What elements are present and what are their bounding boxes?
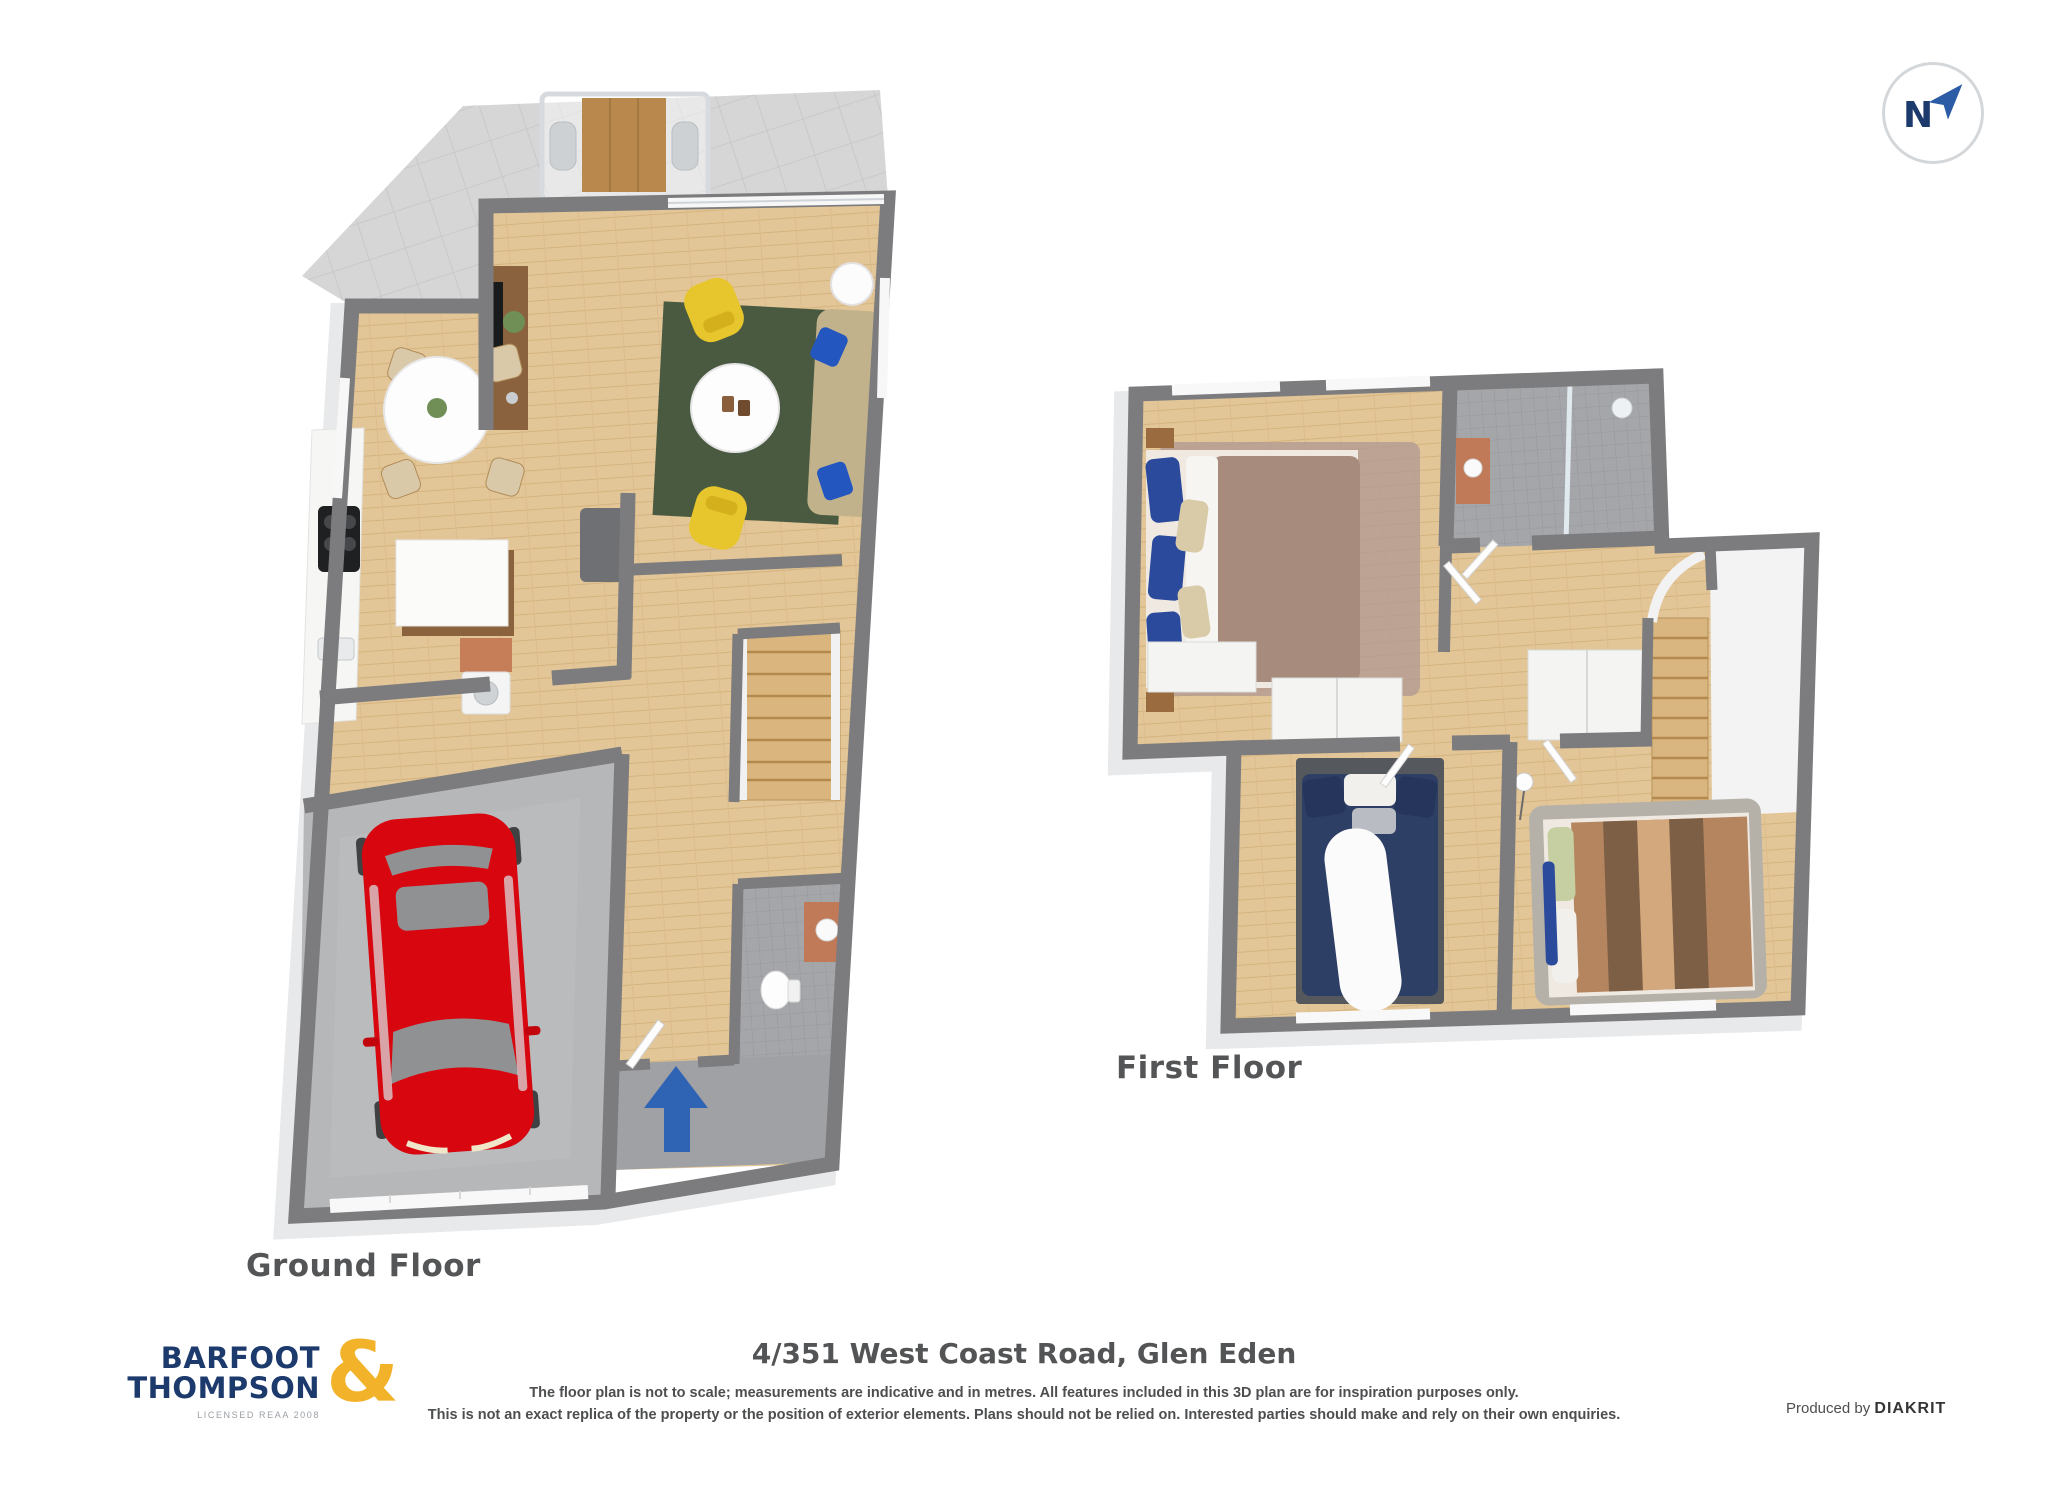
first-floor-plan (1100, 350, 1860, 1050)
side-mirror (524, 1026, 541, 1036)
outdoor-chair (672, 122, 698, 170)
pillow (1394, 775, 1439, 818)
sunroof (395, 881, 490, 931)
produced-by-text: Produced by (1786, 1400, 1870, 1417)
ground-floor-plan (190, 78, 950, 1263)
side-table (831, 263, 873, 305)
first-floor-label: First Floor (1116, 1050, 1302, 1086)
kitchen-island (396, 540, 514, 636)
compass: N (1882, 62, 1984, 164)
toilet (761, 971, 791, 1009)
outdoor-chair (550, 122, 576, 170)
bedroom-3 (1515, 773, 1767, 1006)
produced-by: Produced by DIAKRIT (1786, 1400, 1946, 1418)
ground-floor-label: Ground Floor (246, 1248, 481, 1284)
dresser (1148, 642, 1256, 692)
bedroom-2 (1296, 758, 1444, 1015)
disclaimer-line2: This is not an exact replica of the prop… (0, 1407, 2048, 1423)
bathroom (1450, 376, 1662, 548)
floor-lamp (1515, 773, 1533, 791)
property-address: 4/351 West Coast Road, Glen Eden (0, 1337, 2048, 1370)
stair-void (1710, 540, 1806, 816)
entry-porch (612, 1054, 836, 1170)
deck-dining-set (542, 94, 708, 200)
table-plant (427, 398, 447, 418)
laundry-bench (460, 638, 512, 672)
disclaimer-line1: The floor plan is not to scale; measurem… (0, 1385, 2048, 1401)
coffee-table (691, 364, 779, 452)
nightstand (1146, 692, 1174, 712)
shower-head (1612, 398, 1632, 418)
pillow (1302, 775, 1347, 818)
north-arrow-icon (1929, 75, 1972, 119)
staircase (738, 630, 840, 800)
outdoor-table (582, 98, 666, 192)
laundry (460, 638, 512, 714)
pillow-blue (1145, 456, 1186, 523)
compass-n: N (1903, 95, 1933, 136)
floor-plan-page: Ground Floor First Floor N BARFOOT THOMP… (0, 0, 2048, 1494)
nightstand (1146, 428, 1174, 448)
producer-brand: DIAKRIT (1874, 1400, 1946, 1417)
red-car (347, 810, 548, 1158)
compass-icon: N (1885, 65, 1981, 161)
plant (503, 311, 525, 333)
master-bedroom (1145, 428, 1420, 712)
side-mirror (363, 1037, 380, 1047)
